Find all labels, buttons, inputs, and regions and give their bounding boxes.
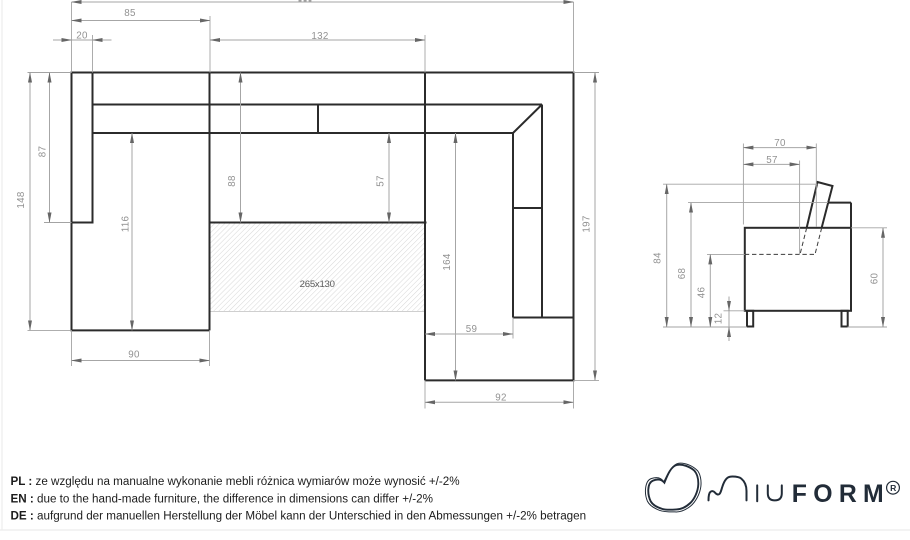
svg-text:FORM: FORM [792,481,890,508]
svg-text:265x130: 265x130 [300,279,335,290]
svg-text:57: 57 [766,155,778,166]
svg-text:PL : ze względu na manualne wy: PL : ze względu na manualne wykonanie me… [11,475,460,488]
svg-text:20: 20 [76,31,88,42]
svg-text:164: 164 [442,253,453,270]
svg-text:84: 84 [653,252,664,264]
svg-text:59: 59 [466,324,478,335]
svg-text:197: 197 [582,215,593,232]
svg-text:R: R [890,483,897,493]
svg-text:EN : due to the hand-made furn: EN : due to the hand-made furniture, the… [11,492,433,505]
svg-text:60: 60 [870,273,881,285]
svg-text:68: 68 [677,268,688,280]
svg-text:85: 85 [124,8,136,19]
svg-text:88: 88 [227,175,238,187]
svg-text:92: 92 [495,392,507,403]
svg-text:57: 57 [376,175,387,187]
svg-text:12: 12 [714,313,725,325]
svg-text:87: 87 [38,146,49,158]
svg-text:132: 132 [311,31,328,42]
svg-text:DE : aufgrund der manuellen He: DE : aufgrund der manuellen Herstellung … [11,510,587,523]
svg-text:90: 90 [128,349,140,360]
svg-text:148: 148 [16,191,27,208]
svg-text:70: 70 [774,138,786,149]
svg-text:116: 116 [121,215,132,232]
svg-text:46: 46 [697,287,708,299]
